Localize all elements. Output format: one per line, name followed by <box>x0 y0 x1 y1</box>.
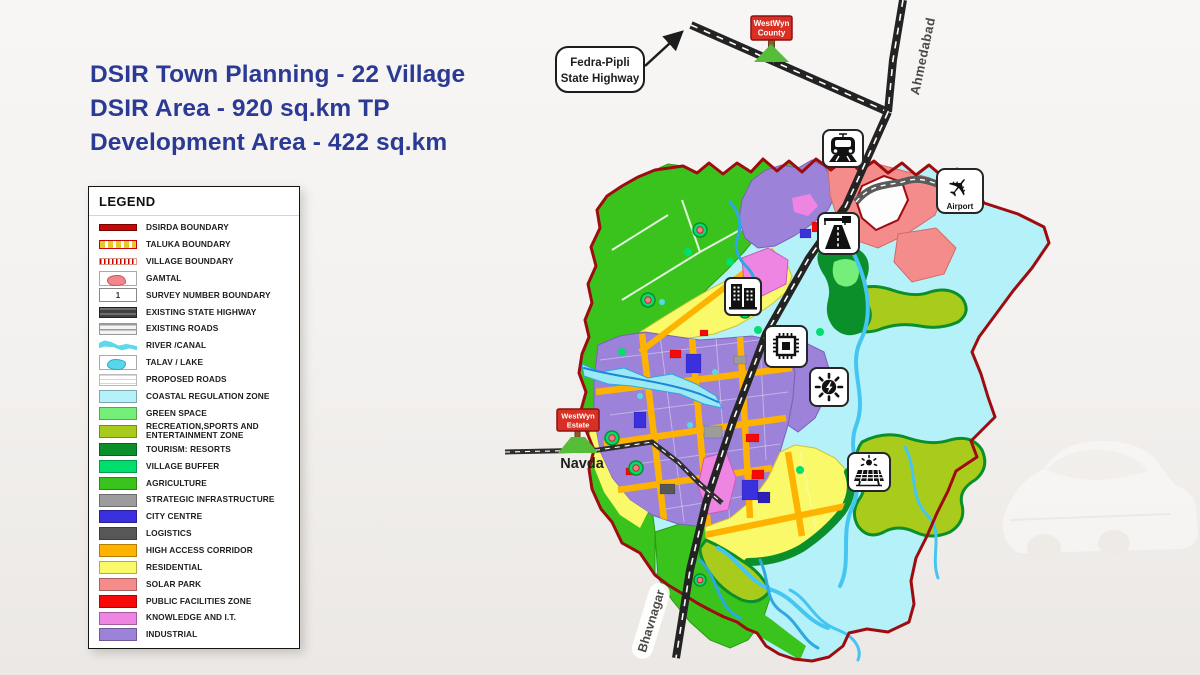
legend-item-coastal-regulation-zone: COASTAL REGULATION ZONE <box>89 388 299 404</box>
industrial-swatch <box>99 628 137 641</box>
airport-label: Airport <box>947 202 974 211</box>
legend-item-dsirda-boundary: DSIRDA BOUNDARY <box>89 220 299 236</box>
dsir-town-planning-poster: WestWyn County WestWyn Estate Fedra-Pipl… <box>0 0 1200 675</box>
tourism-swatch <box>99 443 137 456</box>
recreation-swatch <box>99 425 137 438</box>
county-sign-line1: WestWyn <box>754 19 790 28</box>
legend-item-residential: RESIDENTIAL <box>89 560 299 576</box>
agriculture-swatch <box>99 477 137 490</box>
legend-item-high-access-corridor: HIGH ACCESS CORRIDOR <box>89 543 299 559</box>
legend-item-river-canal: RIVER /CANAL <box>89 338 299 354</box>
legend-body: DSIRDA BOUNDARY TALUKA BOUNDARY VILLAGE … <box>89 220 299 645</box>
background-car-image <box>1002 441 1198 562</box>
knowledge-it-swatch <box>99 612 137 625</box>
legend-item-talav-lake: TALAV / LAKE <box>89 355 299 371</box>
city-buildings-icon <box>725 278 761 315</box>
solar-park-swatch <box>99 578 137 591</box>
state-highway-swatch <box>99 307 137 318</box>
survey-number-value: 1 <box>116 291 120 300</box>
callout-line2: State Highway <box>561 73 640 85</box>
county-sign-line2: County <box>758 29 786 38</box>
proposed-roads-swatch <box>99 374 137 386</box>
legend-item-public-facilities: PUBLIC FACILITIES ZONE <box>89 593 299 609</box>
high-access-corridor-swatch <box>99 544 137 557</box>
legend-item-green-space: GREEN SPACE <box>89 405 299 421</box>
green-space-swatch <box>99 407 137 420</box>
legend-item-existing-state-highway: EXISTING STATE HIGHWAY <box>89 304 299 320</box>
greenspace-inner <box>833 259 859 287</box>
bhavnagar-label: Bhavnagar <box>629 581 672 662</box>
public-facilities-swatch <box>99 595 137 608</box>
legend-item-tourism-resorts: TOURISM: RESORTS <box>89 442 299 458</box>
legend-item-gamtal: GAMTAL <box>89 271 299 287</box>
legend-item-industrial: INDUSTRIAL <box>89 627 299 643</box>
train-icon <box>823 130 863 167</box>
existing-roads-swatch <box>99 323 137 335</box>
ahmedabad-label: Ahmedabad <box>907 16 938 96</box>
callout-line1: Fedra-Pipli <box>570 57 629 69</box>
city-centre-swatch <box>99 510 137 523</box>
legend-item-agriculture: AGRICULTURE <box>89 475 299 491</box>
title-line-3: Development Area - 422 sq.km <box>90 126 465 160</box>
title-line-2: DSIR Area - 920 sq.km TP <box>90 92 465 126</box>
energy-icon <box>810 368 848 406</box>
survey-number-swatch: 1 <box>99 288 137 302</box>
legend-panel: LEGEND DSIRDA BOUNDARY TALUKA BOUNDARY V… <box>88 186 300 649</box>
solar-farm-icon <box>848 453 890 491</box>
legend-item-village-boundary: VILLAGE BOUNDARY <box>89 254 299 270</box>
dsir-map <box>579 158 1049 661</box>
dsirda-boundary-swatch <box>99 224 137 231</box>
navda-label: Navda <box>560 456 604 472</box>
legend-item-strategic-infrastructure: STRATEGIC INFRASTRUCTURE <box>89 492 299 508</box>
highway-callout: Fedra-Pipli State Highway <box>556 32 682 92</box>
residential-swatch <box>99 561 137 574</box>
estate-sign-line1: WestWyn <box>561 412 595 421</box>
expressway-icon <box>818 213 859 254</box>
legend-item-logistics: LOGISTICS <box>89 526 299 542</box>
talav-lake-swatch <box>99 355 137 370</box>
village-buffer-swatch <box>99 460 137 473</box>
legend-item-city-centre: CITY CENTRE <box>89 509 299 525</box>
estate-sign-line2: Estate <box>567 421 590 430</box>
legend-heading: LEGEND <box>89 192 299 216</box>
logistics-swatch <box>99 527 137 540</box>
legend-item-existing-roads: EXISTING ROADS <box>89 321 299 337</box>
legend-item-recreation-zone: RECREATION,SPORTS AND ENTERTAINMENT ZONE <box>89 422 299 441</box>
village-boundary-swatch <box>99 258 137 265</box>
strategic-infrastructure-swatch <box>99 494 137 507</box>
river-canal-swatch <box>99 339 137 353</box>
taluka-boundary-swatch <box>99 240 137 249</box>
legend-item-village-buffer: VILLAGE BUFFER <box>89 458 299 474</box>
airport-icon: ✈ Airport <box>937 169 983 213</box>
legend-item-survey-number: 1SURVEY NUMBER BOUNDARY <box>89 287 299 303</box>
legend-item-taluka-boundary: TALUKA BOUNDARY <box>89 237 299 253</box>
coastal-zone-swatch <box>99 390 137 403</box>
legend-item-proposed-roads: PROPOSED ROADS <box>89 372 299 388</box>
legend-item-knowledge-it: KNOWLEDGE AND I.T. <box>89 610 299 626</box>
gamtal-swatch <box>99 271 137 286</box>
semiconductor-chip-icon <box>765 326 807 367</box>
legend-item-solar-park: SOLAR PARK <box>89 576 299 592</box>
title-line-1: DSIR Town Planning - 22 Village <box>90 58 465 92</box>
page-title: DSIR Town Planning - 22 Village DSIR Are… <box>90 58 465 160</box>
